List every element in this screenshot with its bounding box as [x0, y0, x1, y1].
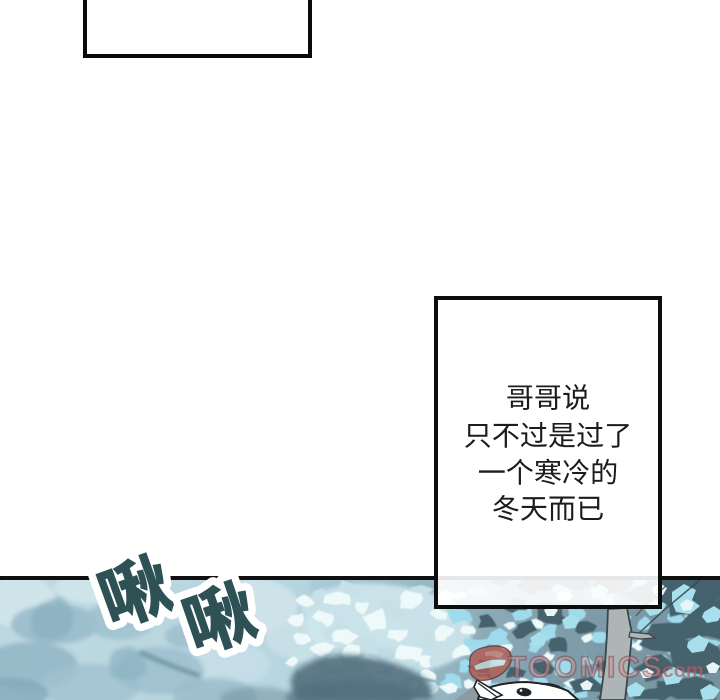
svg-text:TOOMICS: TOOMICS [508, 651, 664, 684]
svg-text:.com: .com [657, 660, 704, 682]
